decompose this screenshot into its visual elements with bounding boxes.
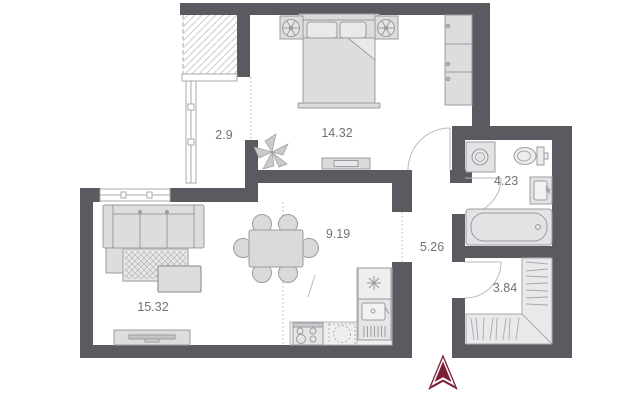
bedside-table-right xyxy=(375,16,398,39)
wall xyxy=(392,262,412,358)
wall xyxy=(250,170,412,183)
wardrobe-cabinet xyxy=(445,15,472,105)
wall xyxy=(180,3,490,15)
kitchen-sink xyxy=(358,299,391,340)
tv-stand xyxy=(114,330,190,345)
wall xyxy=(552,126,572,358)
room-label-hallway: 5.26 xyxy=(420,240,444,254)
room-label-living: 15.32 xyxy=(137,300,168,314)
dresser xyxy=(322,158,370,169)
bathroom-sink xyxy=(530,177,552,204)
wall xyxy=(80,345,412,358)
bedside-table-left xyxy=(280,16,303,39)
room-label-kitchen: 9.19 xyxy=(326,227,350,241)
wall xyxy=(245,140,258,188)
dining-table xyxy=(249,230,303,267)
hood-asterisk-icon xyxy=(367,276,381,290)
room-label-balcony: 2.9 xyxy=(215,128,232,142)
balcony-hatch xyxy=(183,15,237,75)
wall xyxy=(392,170,412,212)
bed xyxy=(298,14,380,108)
stove xyxy=(293,323,323,345)
room-label-bathroom: 4.23 xyxy=(494,174,518,188)
wall xyxy=(80,188,93,358)
wall xyxy=(452,214,465,262)
coffee-table xyxy=(158,266,201,292)
wall xyxy=(80,188,100,202)
floor-plan: 2.9 14.32 15.32 9.19 5.26 4.23 3.84 xyxy=(0,0,640,400)
wall xyxy=(237,15,250,77)
living-room-window xyxy=(100,189,170,201)
bathtub xyxy=(466,209,552,245)
wall xyxy=(465,246,552,258)
room-label-closet: 3.84 xyxy=(493,281,517,295)
wall xyxy=(472,3,490,140)
wall xyxy=(170,188,258,202)
toilet xyxy=(514,147,548,165)
washing-machine xyxy=(466,142,495,172)
room-label-bedroom: 14.32 xyxy=(321,126,352,140)
wall xyxy=(452,344,572,358)
